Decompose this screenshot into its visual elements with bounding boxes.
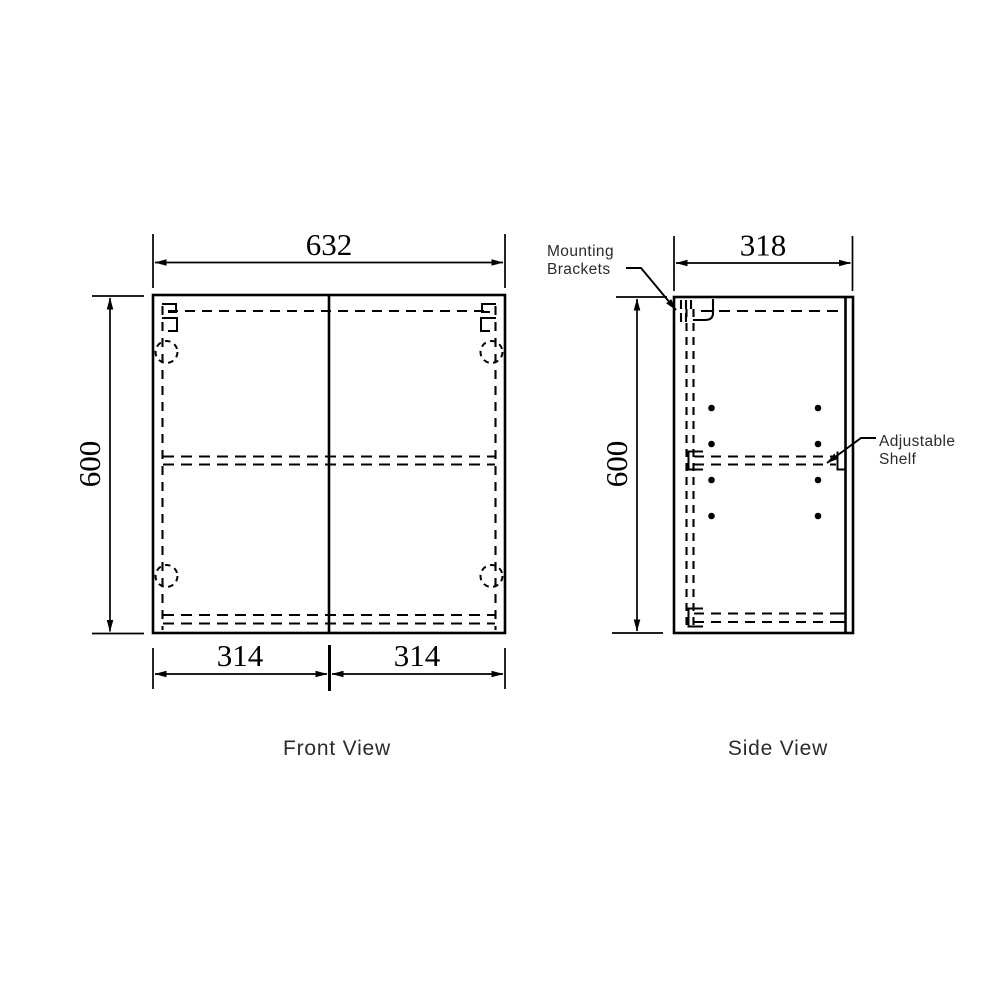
- adjustable-shelf-label-line2: Shelf: [879, 451, 917, 468]
- front-view-title: Front View: [283, 737, 391, 760]
- mounting-brackets-label-line1: Mounting: [547, 243, 614, 260]
- side-hidden-bottom-panel: [689, 609, 846, 627]
- cabinet-drawing-svg: 632 600 314 314 Front View: [0, 0, 1000, 1000]
- side-shelf-pin-holes: [708, 405, 821, 520]
- side-depth-dim-value: 318: [740, 228, 787, 263]
- front-view: 632 600 314 314 Front View: [72, 227, 505, 760]
- side-view: 318 600 Mounting Brackets Adjustable She…: [547, 228, 955, 761]
- technical-drawing-canvas: 632 600 314 314 Front View: [0, 0, 1000, 1000]
- side-view-title: Side View: [728, 737, 828, 760]
- mounting-brackets-leader-line: [626, 268, 676, 310]
- front-door-dimensions: [153, 645, 505, 691]
- adjustable-shelf-label-line1: Adjustable: [879, 433, 955, 450]
- side-adjustable-shelf: [689, 452, 846, 470]
- mounting-brackets-label-line2: Brackets: [547, 261, 611, 278]
- front-left-door-dim-value: 314: [217, 638, 264, 673]
- front-right-door-dim-value: 314: [394, 638, 441, 673]
- adjustable-shelf-leader-line: [827, 438, 876, 463]
- front-height-dim-value: 600: [72, 441, 107, 488]
- side-height-dim-value: 600: [599, 441, 634, 488]
- front-width-dim-value: 632: [306, 227, 353, 262]
